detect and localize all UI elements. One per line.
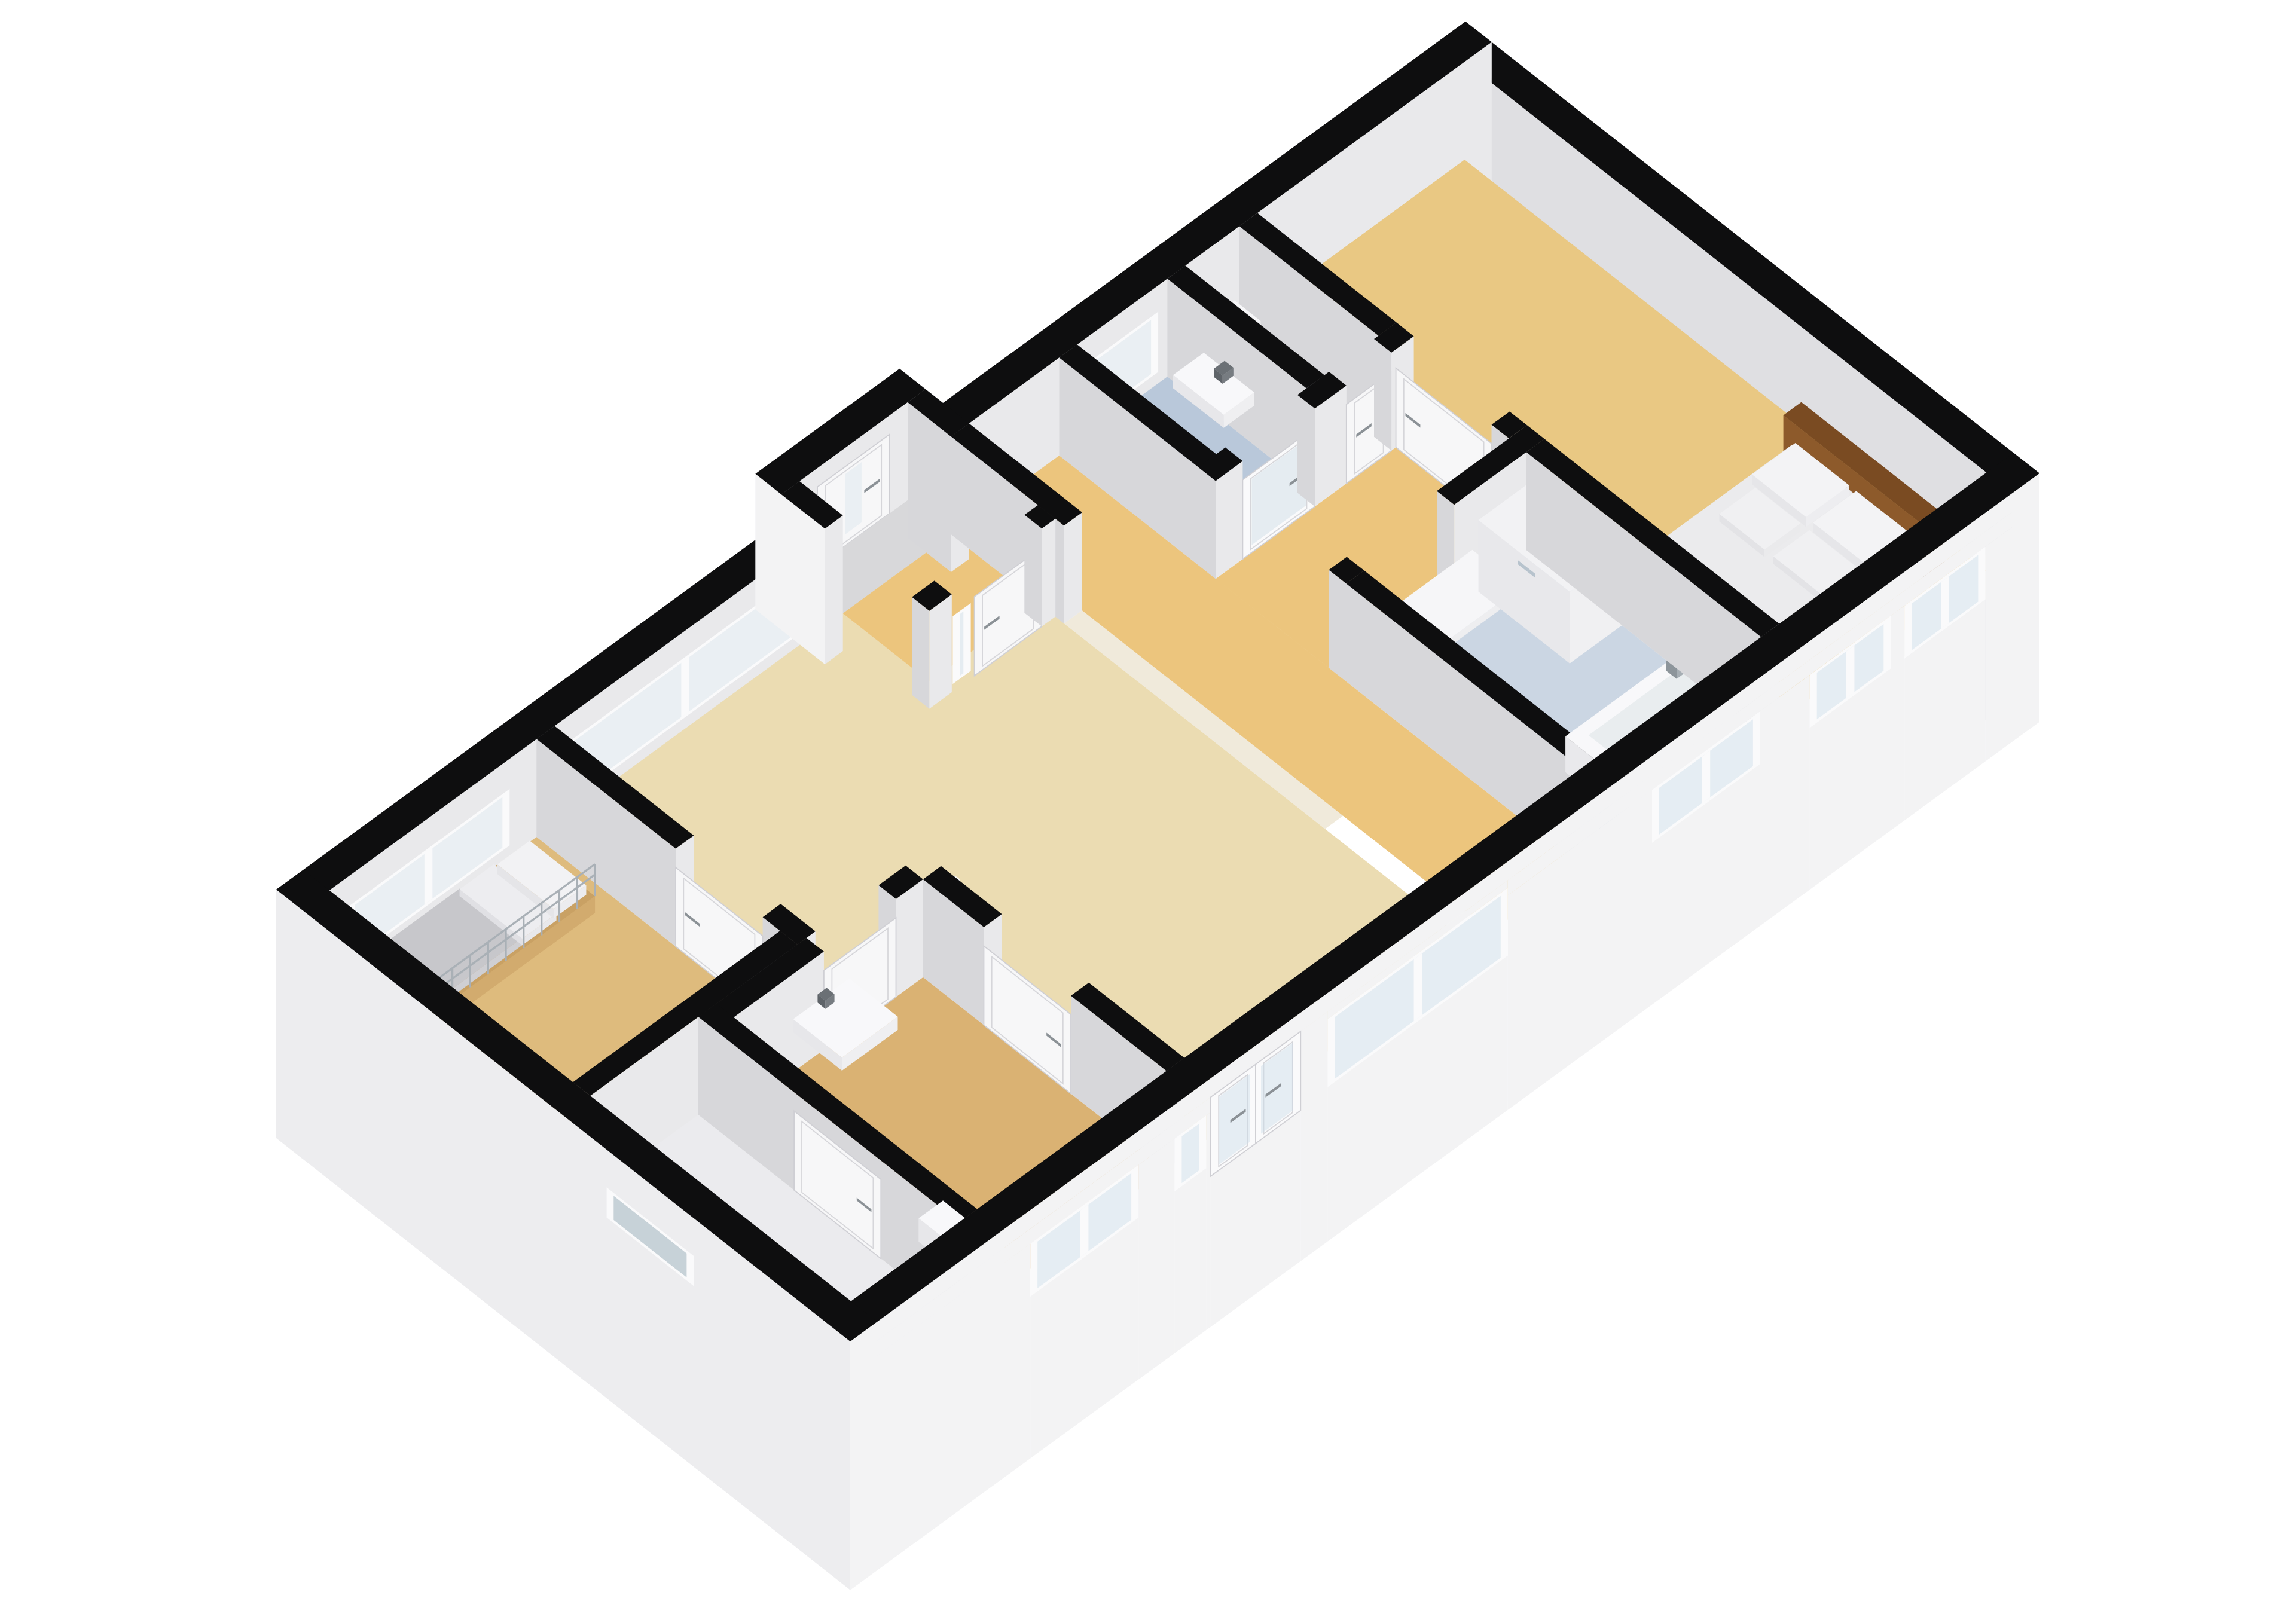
vestibule-wall-seg-face xyxy=(929,594,952,708)
vestibule-sidelight-glass xyxy=(960,612,963,676)
se-facade xyxy=(1891,606,1904,830)
living-room-nw-window-mullion xyxy=(681,657,689,717)
se-facade xyxy=(1760,675,1810,925)
bathtub-se-window-mullion xyxy=(1702,751,1711,803)
sw-facade-wall-face xyxy=(850,1322,877,1590)
se-facade xyxy=(1300,1011,1327,1261)
bedroom1-se-window-1-mullion xyxy=(1846,646,1855,698)
wall-bathroom2-nw-seg-face xyxy=(896,879,923,997)
living-room-se-window-mullion xyxy=(1414,953,1422,1021)
floorplan-3d-render xyxy=(0,0,2296,1623)
wall-living-hall-face xyxy=(1064,512,1082,623)
corridor-wall-seg-face xyxy=(1374,339,1391,451)
corridor-wall-seg-face xyxy=(1216,461,1242,579)
corridor-wall-seg-face xyxy=(1198,467,1216,579)
se-facade xyxy=(1986,507,2039,761)
porch-north-wall-face xyxy=(755,474,781,630)
porch-west-wall-face xyxy=(825,515,843,664)
vestibule-wall-seg-face xyxy=(912,597,929,709)
se-facade xyxy=(1138,1139,1174,1380)
bedroom3-nw-window-mullion xyxy=(425,848,433,905)
vestibule-wall-seg-face xyxy=(1024,515,1042,626)
bedroom1-se-window-2-mullion xyxy=(1941,576,1949,629)
vestibule-wall-seg-face xyxy=(1042,519,1055,626)
utility-nw-wall-seg-face xyxy=(1329,570,1346,681)
front-door-glass xyxy=(845,462,862,534)
se-facade xyxy=(1174,1168,1206,1353)
bathroom2-se-window-mullion xyxy=(1080,1205,1089,1257)
corridor-wall-seg-face xyxy=(1297,395,1315,507)
se-facade xyxy=(1206,1112,1211,1331)
floorplan-3d-view xyxy=(0,0,2296,1623)
